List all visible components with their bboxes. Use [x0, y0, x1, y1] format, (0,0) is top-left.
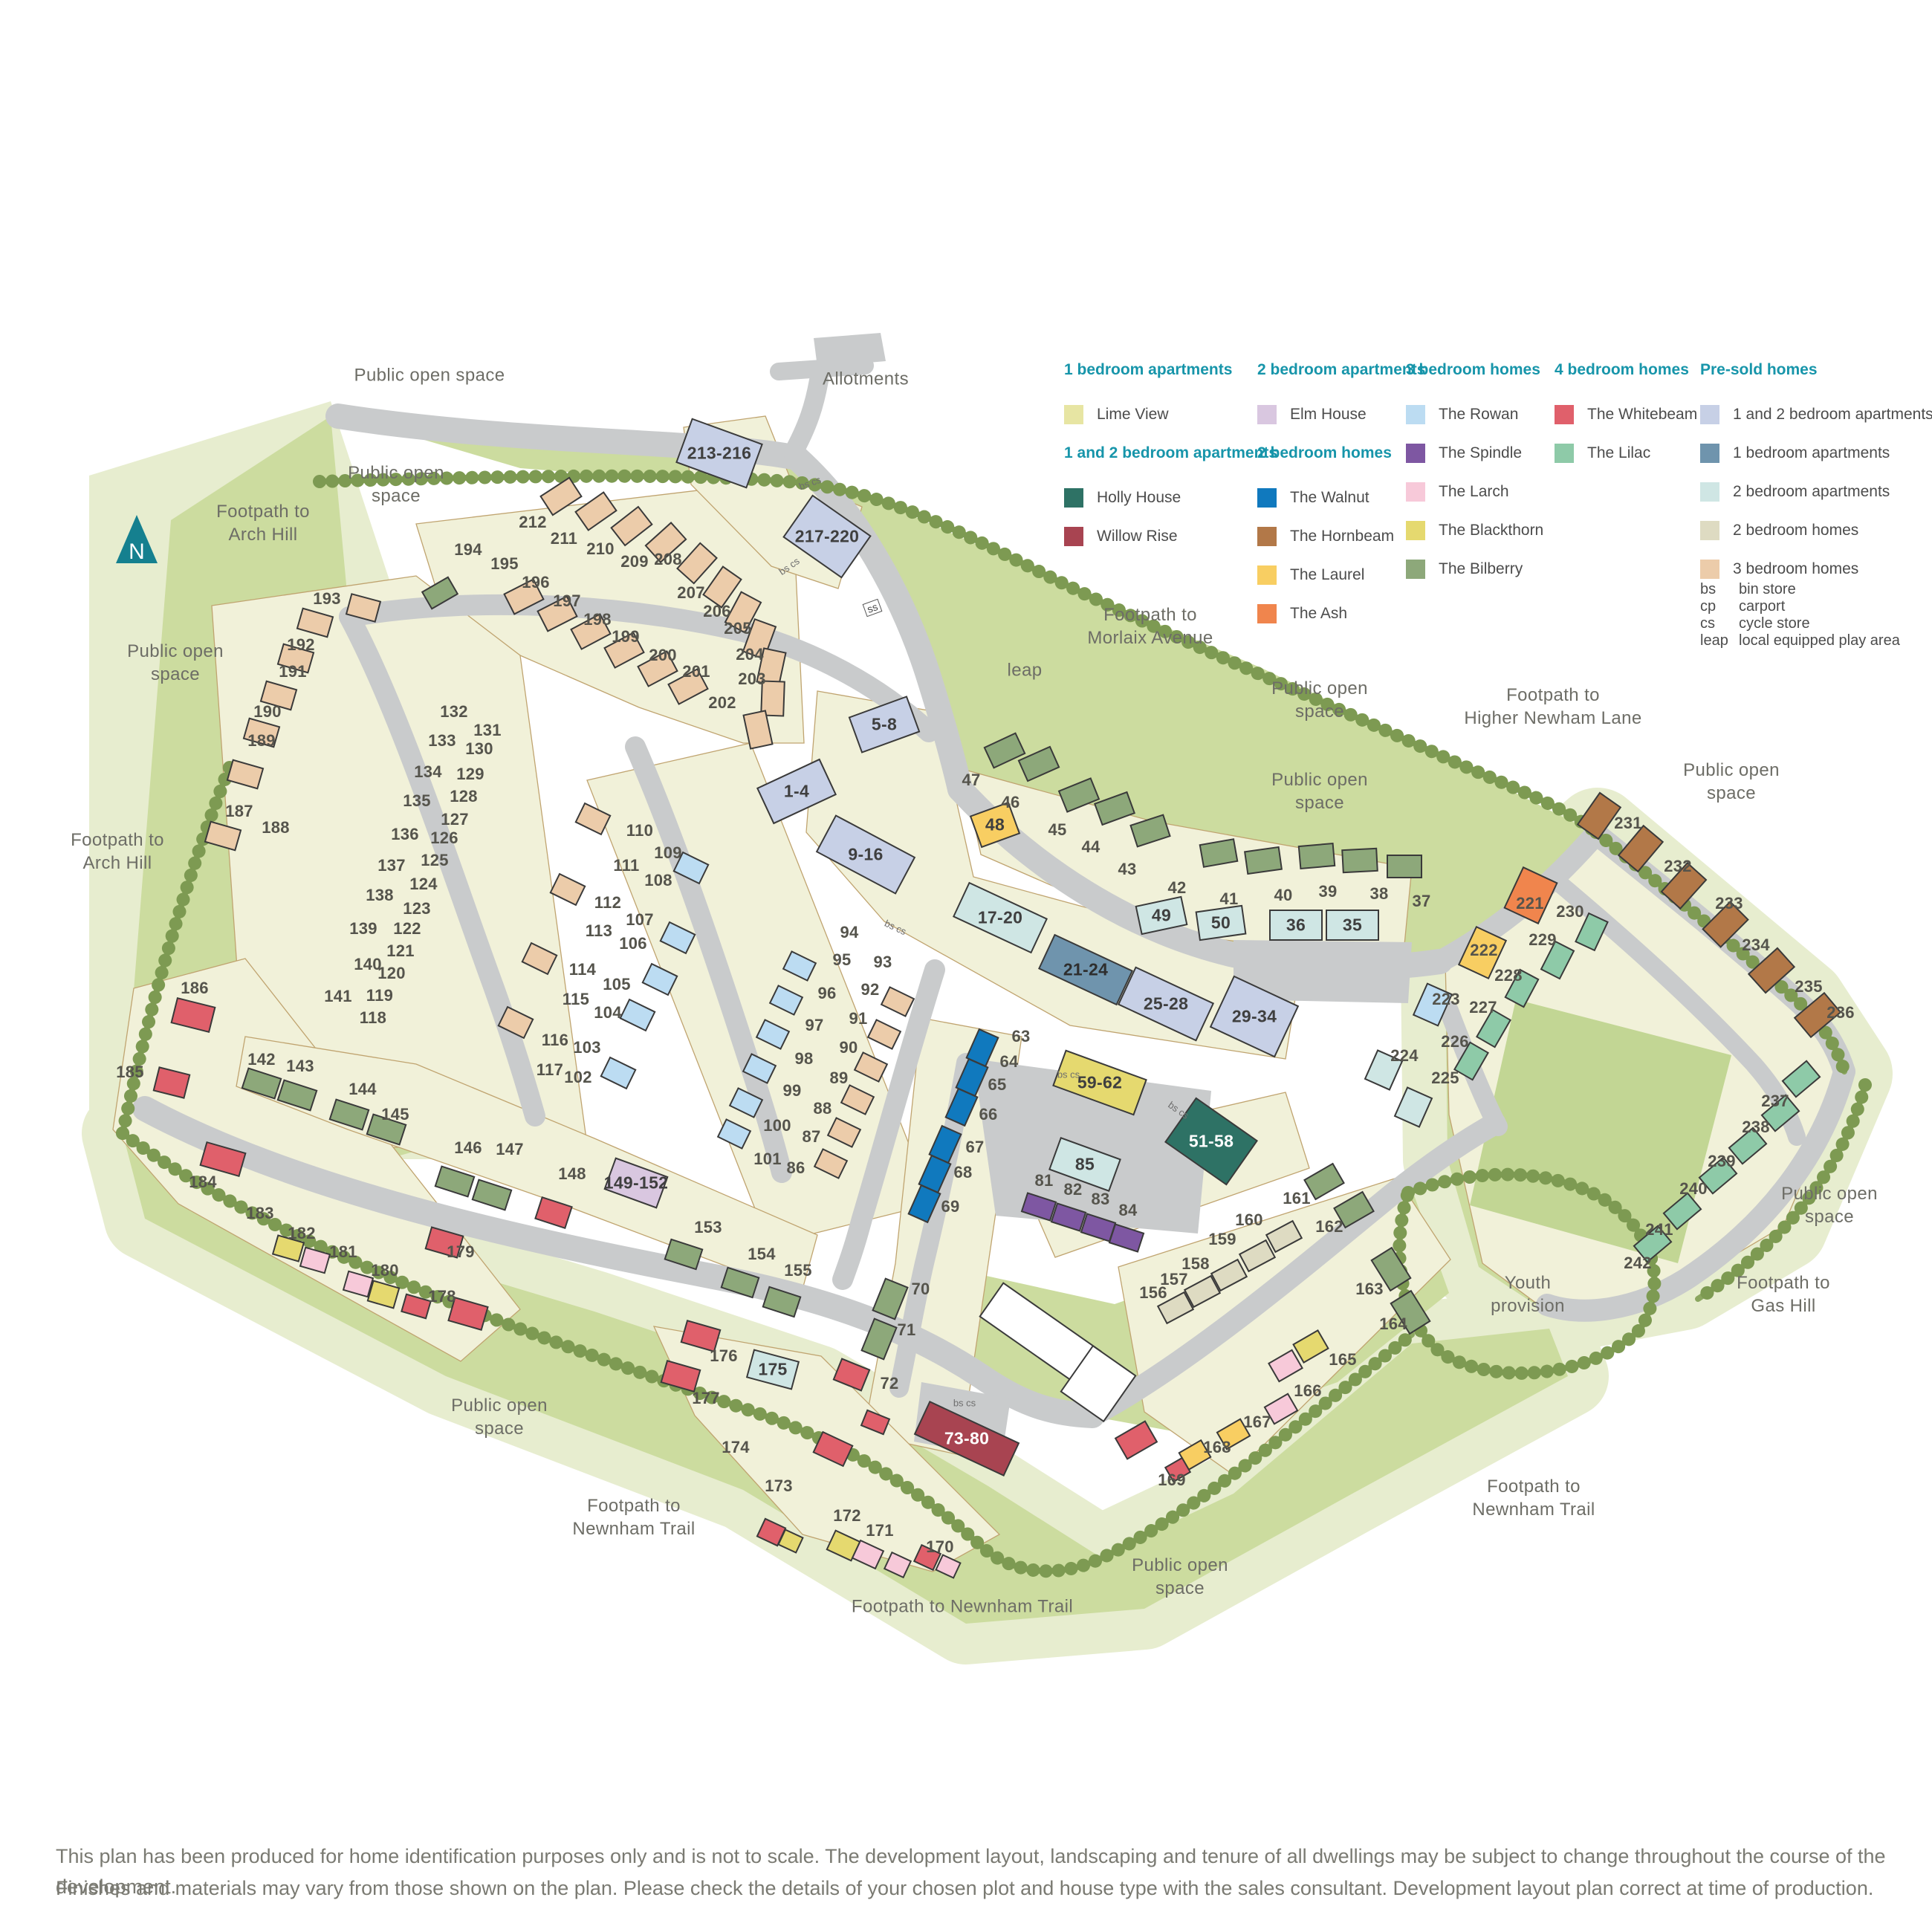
legend-item-label: The Larch	[1439, 483, 1509, 501]
legend-swatch-ps1	[1700, 444, 1719, 463]
legend-item-label: 3 bedroom homes	[1733, 560, 1858, 578]
legend-heading: 1 bedroom apartments	[1064, 361, 1277, 379]
house	[868, 1020, 901, 1048]
legend-item: The Laurel	[1257, 556, 1425, 594]
compass-letter: N	[129, 539, 145, 564]
legend-column: 4 bedroom homesThe WhitebeamThe Lilac	[1555, 361, 1697, 483]
legend-item-label: The Laurel	[1290, 566, 1364, 584]
legend-item: Elm House	[1257, 395, 1425, 434]
legend-heading: 2 bedroom homes	[1257, 444, 1425, 462]
legend-item: Holly House	[1064, 479, 1277, 517]
legend-item-label: The Spindle	[1439, 444, 1522, 462]
legend-swatch-larch	[1406, 482, 1425, 502]
legend-swatch-rowan	[1406, 405, 1425, 424]
legend-abbreviations: bsbin storecpcarportcscycle storeleaploc…	[1700, 581, 1900, 649]
legend-item: The Ash	[1257, 594, 1425, 633]
legend-item-label: The Whitebeam	[1587, 406, 1697, 424]
legend-swatch-ash	[1257, 604, 1277, 623]
legend-item: 1 and 2 bedroom apartments	[1700, 395, 1932, 434]
legend-item-label: 1 bedroom apartments	[1733, 444, 1890, 462]
legend-item: The Rowan	[1406, 395, 1543, 434]
apartment-block	[1270, 910, 1322, 940]
legend-item: 2 bedroom apartments	[1700, 473, 1932, 511]
legend-item: 1 bedroom apartments	[1700, 434, 1932, 473]
house	[1245, 847, 1282, 874]
legend-swatch-ps2h	[1700, 521, 1719, 540]
site-plan-page: N Public open spaceAllotmentsPublic open…	[0, 0, 1932, 1932]
legend-column: 1 bedroom apartmentsLime View1 and 2 bed…	[1064, 361, 1277, 566]
legend-item: The Whitebeam	[1555, 395, 1697, 434]
legend-column: 2 bedroom apartmentsElm House2 bedroom h…	[1257, 361, 1425, 644]
legend-swatch-ps3	[1700, 560, 1719, 579]
legend-swatch-spindle	[1406, 444, 1425, 463]
legend-item: The Larch	[1406, 473, 1543, 511]
house	[1299, 843, 1335, 869]
legend-swatch-elm	[1257, 405, 1277, 424]
legend-abbreviation: cpcarport	[1700, 598, 1900, 615]
legend-item-label: 2 bedroom apartments	[1733, 483, 1890, 501]
legend-heading: 4 bedroom homes	[1555, 361, 1697, 379]
legend-item: The Blackthorn	[1406, 511, 1543, 550]
legend-swatch-holly	[1064, 488, 1083, 508]
legend-swatch-hornbeam	[1257, 527, 1277, 546]
legend-swatch-laurel	[1257, 565, 1277, 585]
legend-swatch-walnut	[1257, 488, 1277, 508]
legend-abbreviation: bsbin store	[1700, 581, 1900, 598]
legend-abbreviation: leaplocal equipped play area	[1700, 632, 1900, 649]
legend-item: The Lilac	[1555, 434, 1697, 473]
house	[601, 1057, 635, 1089]
house	[551, 874, 585, 905]
legend-heading: 2 bedroom apartments	[1257, 361, 1425, 379]
legend-item-label: The Rowan	[1439, 406, 1518, 424]
legend-item: The Bilberry	[1406, 550, 1543, 589]
legend-column: 3 bedroom homesThe RowanThe SpindleThe L…	[1406, 361, 1543, 599]
legend-item: The Hornbeam	[1257, 517, 1425, 556]
legend-item: The Spindle	[1406, 434, 1543, 473]
legend-item-label: The Blackthorn	[1439, 522, 1543, 539]
house	[1342, 849, 1378, 872]
legend-item-label: Holly House	[1097, 489, 1181, 507]
house	[1365, 1050, 1402, 1089]
legend-item: Lime View	[1064, 395, 1277, 434]
legend-swatch-ps2a	[1700, 482, 1719, 502]
house	[620, 999, 655, 1031]
legend-item-label: The Walnut	[1290, 489, 1369, 507]
site-map: N	[0, 0, 1932, 1932]
legend-swatch-blackthorn	[1406, 521, 1425, 540]
legend-item-label: The Lilac	[1587, 444, 1650, 462]
legend-swatch-limeView	[1064, 405, 1083, 424]
legend-item-label: The Hornbeam	[1290, 528, 1394, 545]
apartment-block	[1196, 906, 1246, 940]
legend-item: 2 bedroom homes	[1700, 511, 1932, 550]
legend-item-label: Lime View	[1097, 406, 1169, 424]
legend-item: Willow Rise	[1064, 517, 1277, 556]
legend-item-label: 1 and 2 bedroom apartments	[1733, 406, 1932, 424]
legend-item-label: The Ash	[1290, 605, 1347, 623]
legend-column: Pre-sold homes1 and 2 bedroom apartments…	[1700, 361, 1932, 599]
legend-item: The Walnut	[1257, 479, 1425, 517]
apartment-block	[1326, 910, 1378, 940]
house	[881, 987, 914, 1016]
legend-swatch-bilberry	[1406, 560, 1425, 579]
legend-item-label: Elm House	[1290, 406, 1367, 424]
legend-item-label: The Bilberry	[1439, 560, 1523, 578]
legend-heading: Pre-sold homes	[1700, 361, 1932, 379]
legend-item-label: Willow Rise	[1097, 528, 1178, 545]
legend-swatch-whitebeam	[1555, 405, 1574, 424]
house	[1387, 855, 1422, 878]
legend-swatch-ps12	[1700, 405, 1719, 424]
legend-abbreviation: cscycle store	[1700, 615, 1900, 632]
legend-swatch-lilac	[1555, 444, 1574, 463]
disclaimer-line-2: Finishes and materials may vary from tho…	[56, 1873, 1891, 1904]
legend-item-label: 2 bedroom homes	[1733, 522, 1858, 539]
legend-swatch-willow	[1064, 527, 1083, 546]
house	[1304, 1164, 1343, 1199]
legend-heading: 3 bedroom homes	[1406, 361, 1543, 379]
legend-heading: 1 and 2 bedroom apartments	[1064, 444, 1277, 462]
